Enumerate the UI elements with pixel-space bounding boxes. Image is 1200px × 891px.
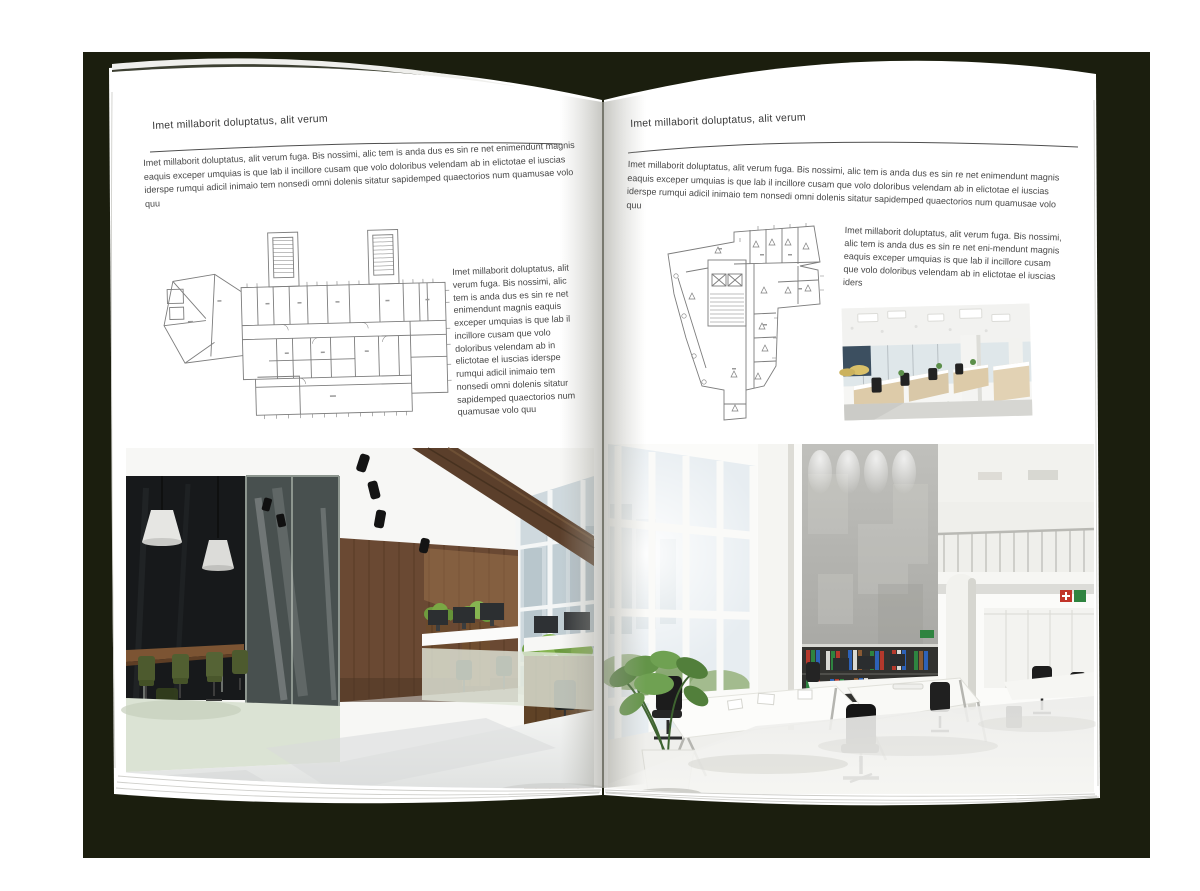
- photo-office-small: [838, 304, 1033, 421]
- open-book-graphic: [0, 0, 1200, 891]
- photo-office-dark-wood: [121, 448, 616, 801]
- left-floorplan-caption: Imet millaborit doluptatus, alit verum f…: [452, 261, 580, 419]
- exit-sign: [920, 630, 934, 638]
- right-floorplan-caption: Imet millaborit doluptatus, alit verum f…: [843, 224, 1063, 297]
- magazine-mockup: Imet millaborit doluptatus, alit verum I…: [0, 0, 1200, 891]
- spine-shadow-left: [560, 95, 602, 788]
